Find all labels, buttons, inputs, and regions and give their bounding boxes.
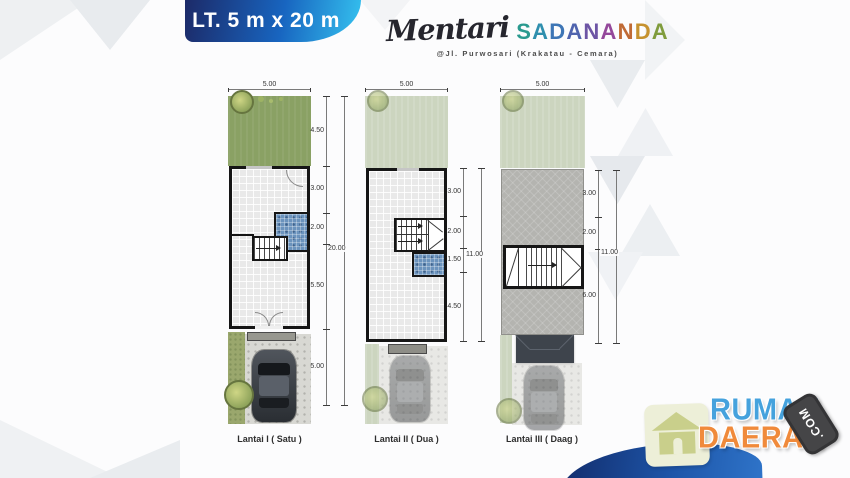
stair-direction-arrow bbox=[528, 265, 556, 266]
stair-divider bbox=[396, 234, 428, 235]
car-rear-window bbox=[397, 404, 423, 414]
dimension-tick bbox=[323, 213, 330, 214]
dimension-tick bbox=[595, 217, 602, 218]
tree-icon bbox=[224, 380, 254, 410]
dimension-tick bbox=[460, 216, 467, 217]
dimension-label: 1.50 bbox=[439, 256, 461, 263]
stair-winder-line bbox=[428, 238, 444, 250]
stair-direction-arrow bbox=[398, 241, 422, 242]
brand-caps: SADANANDA bbox=[516, 19, 669, 45]
balcony-canopy bbox=[388, 344, 427, 354]
stair-treads bbox=[396, 235, 428, 250]
lot-size-badge: LT. 5 m x 20 m bbox=[185, 0, 361, 42]
interior-wall bbox=[232, 234, 254, 236]
dimension-tick bbox=[613, 170, 620, 171]
dimension-line-total bbox=[616, 170, 617, 344]
house-door-shape bbox=[673, 438, 683, 454]
shrub-icon bbox=[258, 96, 264, 102]
car-roof bbox=[531, 392, 557, 412]
dimension-label: 2.00 bbox=[302, 224, 324, 231]
car-rear-window bbox=[531, 414, 557, 424]
tree-icon bbox=[367, 90, 389, 112]
brand-title: Mentari SADANANDA bbox=[390, 12, 665, 46]
dimension-label: 2.00 bbox=[439, 228, 461, 235]
roof-ridge-line bbox=[530, 349, 560, 350]
dimension-tick bbox=[613, 343, 620, 344]
dimension-label: 5.00 bbox=[228, 81, 311, 88]
dimension-label: 4.50 bbox=[439, 303, 461, 310]
side-garden-strip bbox=[228, 332, 245, 424]
dimension-tick bbox=[323, 166, 330, 167]
dimension-tick bbox=[595, 343, 602, 344]
dimension-tick bbox=[595, 170, 602, 171]
car-top-view bbox=[390, 356, 430, 422]
stair-winder-line bbox=[562, 267, 582, 287]
dimension-tick bbox=[460, 248, 467, 249]
floorplan-lantai-1: 5.00 4.50 3.00 2.00 5. bbox=[228, 82, 358, 452]
tree-icon bbox=[496, 398, 522, 424]
car-roof bbox=[259, 376, 289, 396]
stair-direction-arrow bbox=[256, 248, 280, 249]
dimension-tick bbox=[460, 341, 467, 342]
dimension-line bbox=[598, 170, 599, 344]
dimension-tick bbox=[341, 405, 348, 406]
plan-label: Lantai III ( Daag ) bbox=[498, 434, 586, 444]
roof-ridge-line bbox=[515, 335, 530, 350]
car-roof bbox=[397, 382, 423, 402]
dimension-label: 2.00 bbox=[574, 229, 596, 236]
stair-enclosure bbox=[503, 245, 584, 289]
dimension-label: 3.00 bbox=[574, 190, 596, 197]
car-rear-window bbox=[259, 398, 289, 408]
dimension-tick bbox=[323, 329, 330, 330]
dimension-label-total: 20.00 bbox=[327, 245, 347, 252]
car-windshield bbox=[258, 363, 290, 375]
dimension-tick bbox=[323, 96, 330, 97]
house-roof-shape bbox=[651, 411, 702, 431]
dimension-label: 5.50 bbox=[302, 282, 324, 289]
dimension-label: 5.00 bbox=[500, 81, 585, 88]
flyer-canvas: LT. 5 m x 20 m Mentari SADANANDA @Jl. Pu… bbox=[0, 0, 850, 478]
plan-label: Lantai II ( Dua ) bbox=[365, 434, 448, 444]
tree-icon bbox=[230, 90, 254, 114]
dimension-label: 5.00 bbox=[365, 81, 448, 88]
stair-divider bbox=[518, 248, 519, 286]
dimension-label: 5.00 bbox=[302, 363, 324, 370]
stair-direction-arrow bbox=[398, 226, 422, 227]
brand-address: @Jl. Purwosari (Krakatau - Cemara) bbox=[390, 49, 665, 58]
site-logo: RUMAH DAERAH .COM bbox=[640, 392, 850, 478]
logo-com-label: .COM bbox=[796, 405, 827, 442]
wall-opening bbox=[397, 168, 419, 171]
bg-triangle bbox=[0, 420, 120, 478]
dimension-label: 3.00 bbox=[439, 188, 461, 195]
tree-icon bbox=[362, 386, 388, 412]
dimension-tick bbox=[478, 341, 485, 342]
dimension-label: 4.50 bbox=[302, 127, 324, 134]
carport-roof bbox=[516, 335, 574, 363]
porch-mat bbox=[247, 332, 296, 341]
dimension-label-total: 11.00 bbox=[465, 251, 484, 258]
dimension-tick bbox=[460, 272, 467, 273]
car-top-view bbox=[524, 366, 564, 430]
dimension-label-total: 11.00 bbox=[600, 249, 619, 256]
dimension-label: 3.00 bbox=[302, 185, 324, 192]
floorplan-lantai-2: 5.00 3.00 bbox=[365, 82, 495, 452]
stair-winder-line bbox=[561, 248, 581, 268]
bg-triangle bbox=[0, 0, 90, 60]
brand-script: Mentari bbox=[386, 10, 510, 48]
car-windshield bbox=[530, 379, 558, 391]
side-garden-strip bbox=[365, 344, 379, 424]
dimension-tick bbox=[460, 168, 467, 169]
car-top-view bbox=[252, 350, 296, 422]
dimension-line bbox=[463, 168, 464, 342]
staircase bbox=[394, 218, 446, 252]
brand-header: Mentari SADANANDA @Jl. Purwosari (Krakat… bbox=[390, 12, 665, 58]
roof-ridge-line bbox=[559, 334, 574, 349]
car-windshield bbox=[396, 369, 424, 381]
stair-divider bbox=[428, 220, 429, 250]
wall-opening bbox=[246, 166, 272, 169]
floorplan-lantai-3: 5.00 3.00 2.0 bbox=[498, 82, 630, 452]
dimension-label: 6.00 bbox=[574, 292, 596, 299]
dimension-tick bbox=[341, 96, 348, 97]
dimension-tick bbox=[323, 405, 330, 406]
tree-icon bbox=[502, 90, 524, 112]
lot-size-label: LT. 5 m x 20 m bbox=[192, 9, 340, 33]
entry-door-opening bbox=[255, 326, 283, 329]
bg-triangle bbox=[70, 0, 150, 50]
stair-treads bbox=[396, 220, 428, 234]
dimension-tick bbox=[478, 168, 485, 169]
plan-label: Lantai I ( Satu ) bbox=[228, 434, 311, 444]
